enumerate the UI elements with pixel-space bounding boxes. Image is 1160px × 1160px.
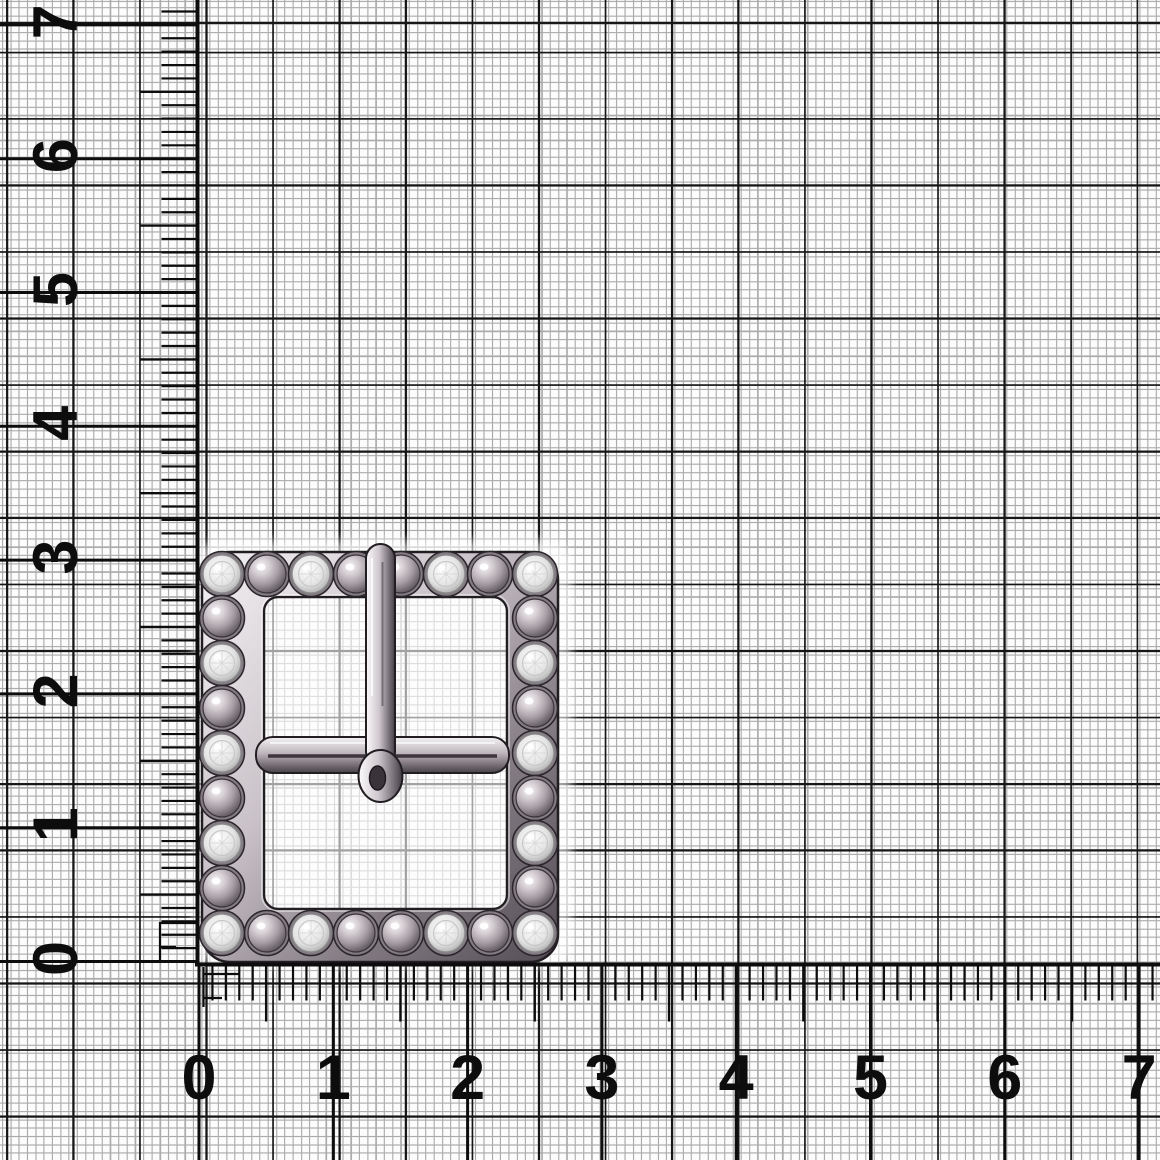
scene-svg: 0123456701234567: [0, 0, 1160, 1160]
rhinestone-sparkle: [527, 565, 533, 571]
vertical-ruler-number: 6: [21, 138, 91, 173]
metal-dome: [471, 555, 509, 593]
rhinestone-sparkle: [303, 565, 309, 571]
metal-dome: [203, 599, 241, 637]
horizontal-ruler-number: 1: [316, 1043, 351, 1113]
prong-tip-hole: [370, 766, 386, 790]
dome-specular: [525, 608, 534, 615]
rhinestone-sparkle: [527, 744, 533, 750]
rhinestone-sparkle: [527, 654, 533, 660]
vertical-ruler-number: 1: [21, 807, 91, 842]
dome-specular: [525, 878, 534, 885]
dome-specular: [525, 698, 534, 705]
dome-specular: [346, 923, 355, 930]
metal-dome: [248, 914, 286, 952]
dome-specular: [212, 878, 221, 885]
rhinestone-sparkle: [527, 834, 533, 840]
horizontal-ruler-number: 0: [181, 1043, 216, 1113]
rhinestone-sparkle: [214, 654, 220, 660]
rhinestone-sparkle: [214, 565, 220, 571]
rhinestone-sparkle: [214, 744, 220, 750]
vertical-ruler-number: 2: [21, 673, 91, 708]
rulers: 0123456701234567: [0, 0, 1160, 1160]
metal-dome: [516, 689, 554, 727]
dome-specular: [346, 564, 355, 571]
vertical-ruler-number: 5: [21, 272, 91, 307]
rhinestone-sparkle: [214, 924, 220, 930]
rhinestone-sparkle: [303, 924, 309, 930]
metal-dome: [203, 689, 241, 727]
metal-dome: [516, 869, 554, 907]
buckle-prong-shaft: [366, 544, 395, 766]
dome-specular: [480, 923, 489, 930]
horizontal-ruler-number: 5: [853, 1043, 888, 1113]
horizontal-ruler-number: 4: [719, 1043, 754, 1113]
dome-specular: [212, 698, 221, 705]
dome-specular: [212, 788, 221, 795]
rhinestone-sparkle: [214, 834, 220, 840]
metal-dome: [203, 869, 241, 907]
vertical-ruler-number: 4: [21, 406, 91, 441]
dome-specular: [257, 564, 266, 571]
metal-dome: [516, 599, 554, 637]
rhinestone-sparkle: [438, 924, 444, 930]
metal-dome: [337, 914, 375, 952]
horizontal-ruler-number: 2: [450, 1043, 485, 1113]
metal-dome: [382, 914, 420, 952]
dome-specular: [480, 564, 489, 571]
horizontal-ruler-number: 6: [987, 1043, 1022, 1113]
rhinestone-sparkle: [438, 565, 444, 571]
dome-specular: [525, 788, 534, 795]
rhinestone-sparkle: [527, 924, 533, 930]
dome-specular: [391, 923, 400, 930]
metal-dome: [248, 555, 286, 593]
horizontal-ruler-number: 7: [1122, 1043, 1157, 1113]
horizontal-ruler-number: 3: [584, 1043, 619, 1113]
metal-dome: [203, 779, 241, 817]
metal-dome: [471, 914, 509, 952]
vertical-ruler-number: 3: [21, 540, 91, 575]
dome-specular: [212, 608, 221, 615]
vertical-ruler-number: 0: [21, 941, 91, 976]
measurement-sheet: 0123456701234567: [0, 0, 1160, 1160]
vertical-ruler-number: 7: [21, 4, 91, 39]
metal-dome: [516, 779, 554, 817]
dome-specular: [257, 923, 266, 930]
